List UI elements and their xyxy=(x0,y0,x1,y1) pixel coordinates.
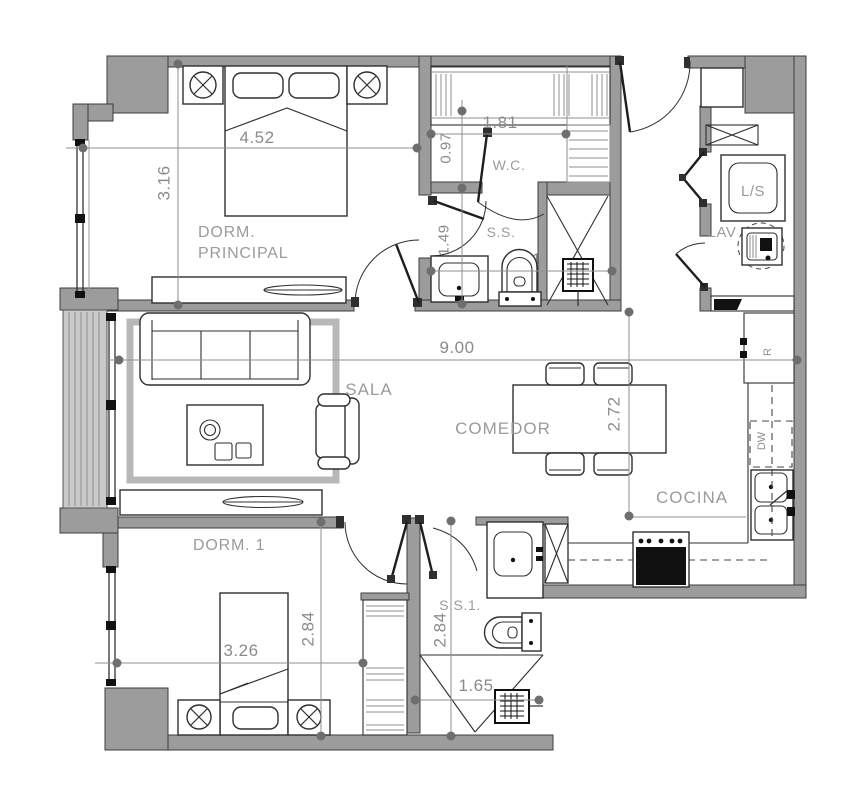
door-entry xyxy=(615,56,690,132)
balcony-cap-bottom xyxy=(60,508,118,533)
laundry-sink xyxy=(738,223,784,269)
crossed-cabinet-icon xyxy=(706,125,758,145)
balcony-sliding-window xyxy=(63,310,116,508)
closet-shelves xyxy=(567,125,610,182)
wall-endcap-entry xyxy=(684,57,690,68)
lamp-icon xyxy=(354,72,380,98)
floor-plan-drawing: 2.41 xyxy=(0,0,861,800)
dim-bath2-width: 1.65 xyxy=(458,676,493,695)
master-bedroom-furniture xyxy=(152,66,387,303)
bedroom1-closet xyxy=(361,593,409,735)
shower xyxy=(547,196,608,306)
bedroom1-furniture xyxy=(178,593,409,735)
label-master-bedroom-line1: DORM. xyxy=(198,224,255,241)
toilet xyxy=(499,250,541,307)
kitchen-sink xyxy=(751,470,795,540)
dim-master-bedroom-width: 4.52 xyxy=(239,128,274,147)
refrigerator xyxy=(740,313,794,383)
entry-cabinet xyxy=(701,68,743,107)
wall-block-top-left xyxy=(107,56,168,113)
wall-block-bottom-left xyxy=(105,688,168,750)
dining-chair xyxy=(546,453,584,475)
toilet xyxy=(485,613,542,651)
stove xyxy=(633,532,689,587)
window-master-bedroom xyxy=(75,139,89,298)
label-living-room: SALA xyxy=(345,380,392,399)
wall-wc-stub xyxy=(431,182,482,193)
wall-endcap-sala xyxy=(336,516,344,528)
dim-overall-width: 9.00 xyxy=(439,338,474,357)
door-bedroom1 xyxy=(345,515,411,584)
door-master-bedroom xyxy=(351,240,422,307)
wall-bottom-exterior xyxy=(167,735,553,750)
wall-w2-stub xyxy=(103,528,118,567)
wall-shower-left xyxy=(538,182,547,307)
wall-wc-west-upper xyxy=(419,56,431,195)
coffee-table xyxy=(187,405,263,465)
wall-right-exterior xyxy=(794,56,806,598)
dining-chair xyxy=(594,363,632,385)
door-laundry-bifold xyxy=(679,148,707,207)
bed1-pillow xyxy=(233,707,278,729)
dim-master-bedroom-depth: 3.16 xyxy=(155,165,174,200)
label-master-bedroom-line2: PRINCIPAL xyxy=(198,245,288,262)
master-bath-fixtures xyxy=(431,196,608,306)
laundry-bench xyxy=(711,296,794,311)
dim-bath2-depth: 2.84 xyxy=(431,612,450,647)
floor-plan: 2.41 xyxy=(0,0,861,800)
dim-walkin-closet-width: 1.81 xyxy=(482,113,517,132)
dining-chair xyxy=(594,453,632,475)
sink xyxy=(431,256,488,302)
dim-bedroom1-depth: 2.84 xyxy=(299,611,318,646)
dining-chair xyxy=(546,363,584,385)
label-dining-room: COMEDOR xyxy=(455,419,551,438)
wall-step-left-v xyxy=(73,104,88,140)
dim-master-bath-depth: 1.49 xyxy=(436,224,453,255)
dim-bedroom1-width: 3.26 xyxy=(223,641,258,660)
door-walkin-closet xyxy=(478,128,544,220)
master-pillow-right xyxy=(289,73,339,98)
sofa xyxy=(140,313,310,385)
label-bath2: S.S.1. xyxy=(439,597,481,613)
window-bedroom1 xyxy=(106,566,116,686)
sink xyxy=(487,522,543,598)
door-bath2 xyxy=(415,515,477,579)
label-master-bath: S.S. xyxy=(487,224,516,240)
lamp-icon xyxy=(187,705,211,729)
tv-console xyxy=(120,490,322,515)
label-laundry: LAV xyxy=(708,224,737,241)
label-kitchen: COCINA xyxy=(656,488,728,507)
label-refrigerator: R xyxy=(762,348,774,356)
dim-walkin-closet-depth: 0.97 xyxy=(438,132,455,163)
wall-shower-top xyxy=(538,182,610,195)
shaft-column xyxy=(545,524,568,583)
master-pillow-left xyxy=(233,73,283,98)
dim-dining-depth: 2.72 xyxy=(605,396,624,431)
wall-sala-dorm1-divider xyxy=(113,517,343,528)
door-laundry-swing xyxy=(676,243,708,291)
doors xyxy=(345,56,708,584)
lamp-icon xyxy=(297,705,321,729)
label-dishwasher: DW xyxy=(756,431,768,450)
wall-laundry-stub3 xyxy=(700,288,711,311)
lamp-icon xyxy=(190,72,216,98)
label-bedroom1: DORM. 1 xyxy=(193,537,265,554)
wall-entry-top xyxy=(688,56,748,68)
label-walkin-closet: W.C. xyxy=(493,157,526,173)
label-washer-dryer: L/S xyxy=(741,183,765,200)
living-room-furniture xyxy=(120,313,359,515)
windows xyxy=(63,139,116,686)
armchair xyxy=(316,394,359,469)
